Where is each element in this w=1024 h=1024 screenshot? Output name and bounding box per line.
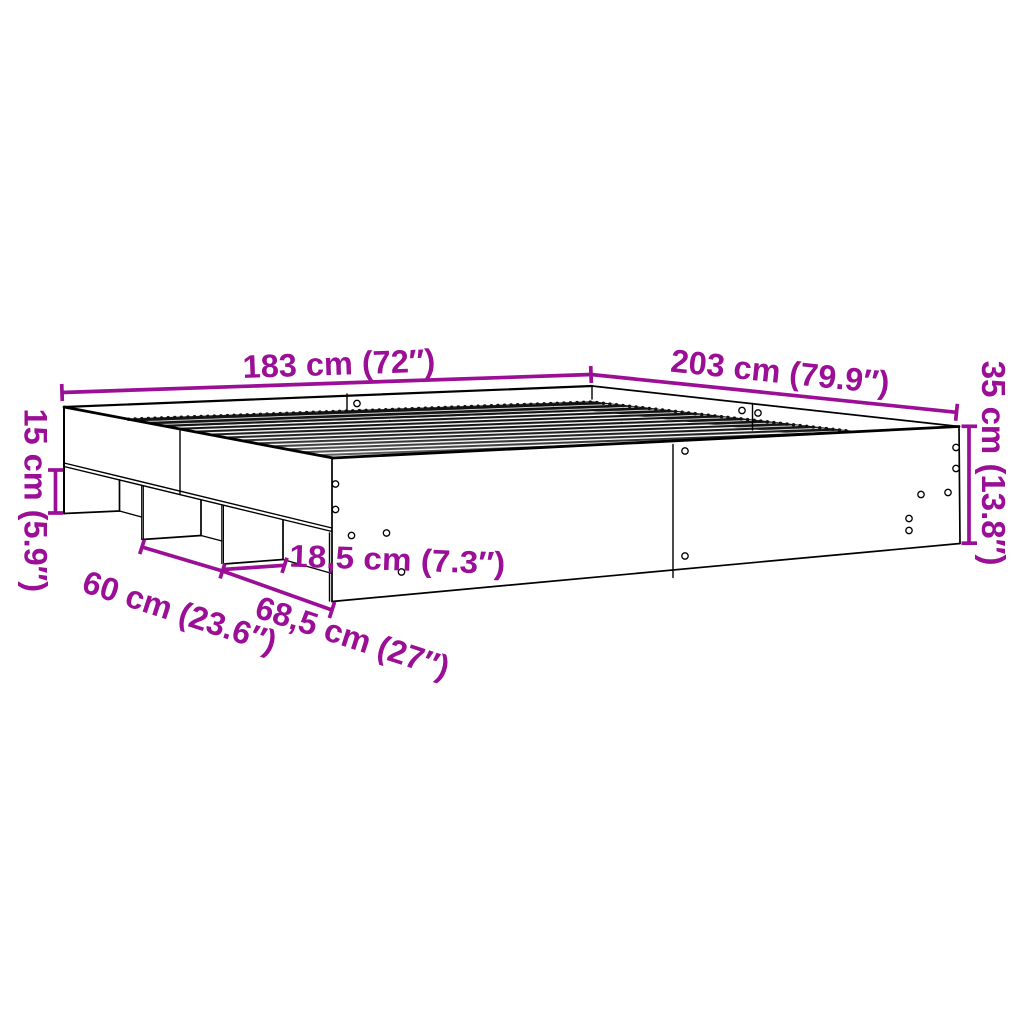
svg-text:183 cm (72″): 183 cm (72″) (242, 342, 436, 385)
svg-text:35 cm (13.8″): 35 cm (13.8″) (975, 361, 1012, 566)
svg-text:15 cm (5.9″): 15 cm (5.9″) (18, 409, 54, 593)
svg-text:18,5 cm (7.3″): 18,5 cm (7.3″) (289, 538, 506, 582)
